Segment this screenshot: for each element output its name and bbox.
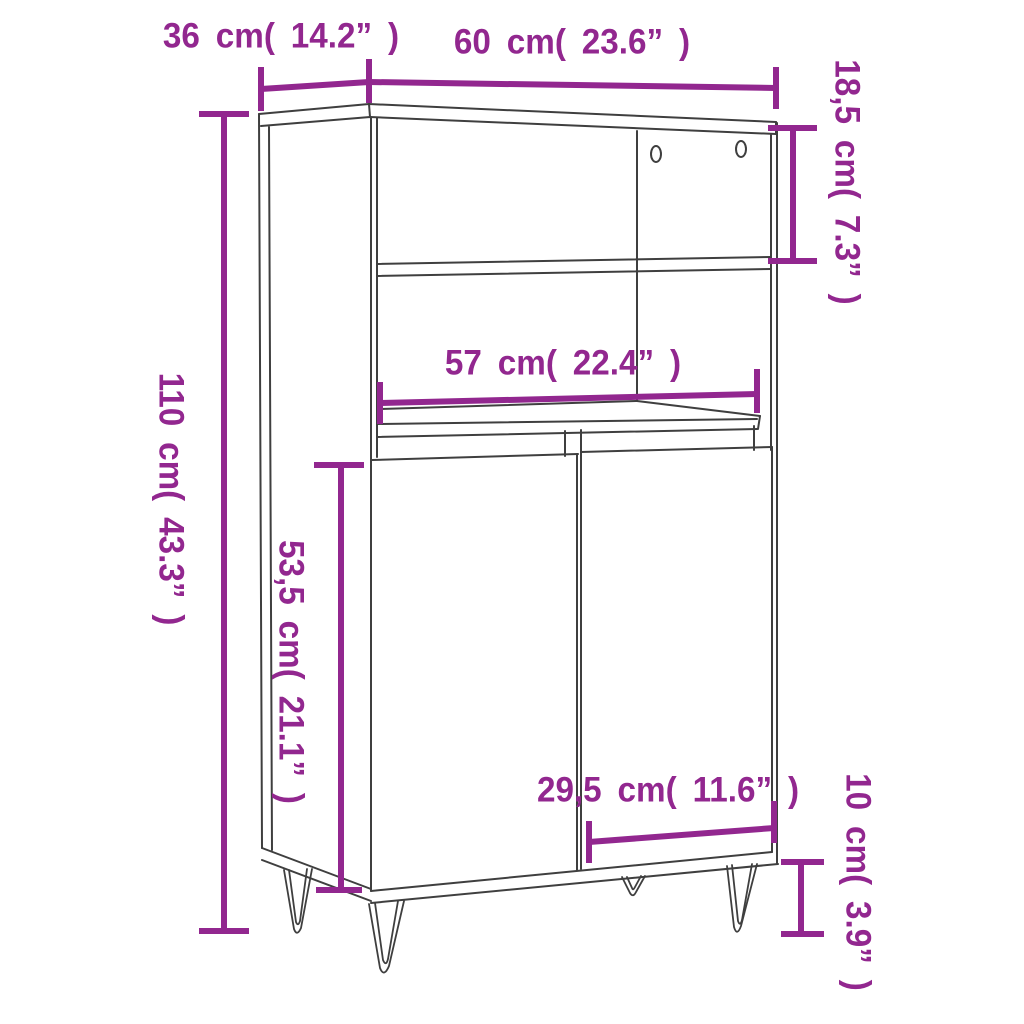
dim-leg-height-10 — [781, 862, 824, 934]
dim-label-door-height: 53,5 cm( 21.1” ) — [274, 540, 309, 804]
dim-top-compartment-18-5 — [768, 128, 817, 261]
dim-label-width: 60 cm( 23.6” ) — [454, 25, 690, 60]
dim-label-total-height: 110 cm( 43.3” ) — [154, 373, 189, 626]
dim-total-height-110 — [199, 114, 249, 931]
dim-width-60 — [369, 67, 776, 109]
dimension-diagram: 36 cm( 14.2” ) 60 cm( 23.6” ) 18,5 cm( 7… — [0, 0, 1024, 1024]
dim-label-leg-height: 10 cm( 3.9” ) — [841, 773, 876, 991]
back-panel-hole — [736, 141, 746, 157]
dim-label-door-width: 29,5 cm( 11.6” ) — [537, 773, 799, 808]
dim-label-top-compartment-height: 18,5 cm( 7.3” ) — [830, 59, 865, 304]
leg-back-left — [284, 869, 312, 933]
dim-label-inner-width: 57 cm( 22.4” ) — [445, 346, 681, 381]
dim-depth-36 — [261, 59, 369, 111]
dim-label-depth: 36 cm( 14.2” ) — [163, 19, 399, 54]
dim-door-height-53-5 — [314, 465, 364, 890]
hairpin-legs — [284, 864, 757, 973]
back-panel-hole — [651, 146, 661, 162]
